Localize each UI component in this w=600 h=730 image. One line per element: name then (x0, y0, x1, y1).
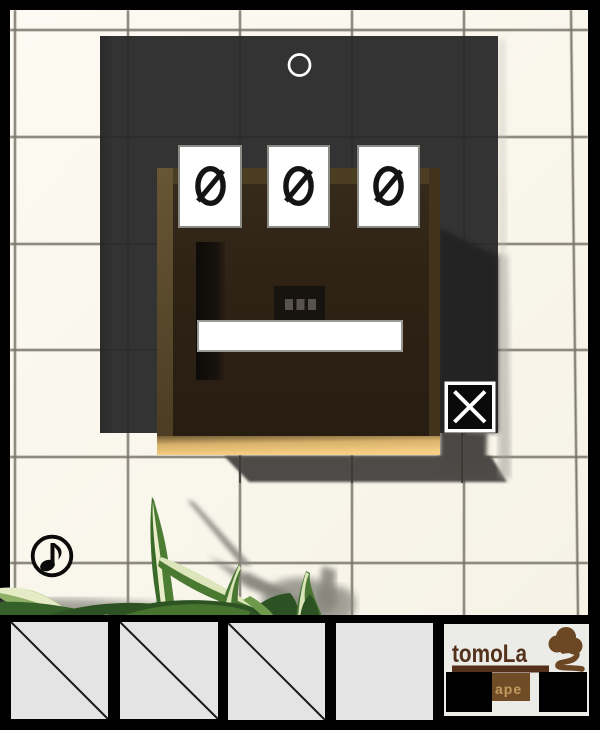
svg-text:tomoLa: tomoLa (452, 640, 528, 668)
svg-text:ape: ape (495, 681, 522, 697)
